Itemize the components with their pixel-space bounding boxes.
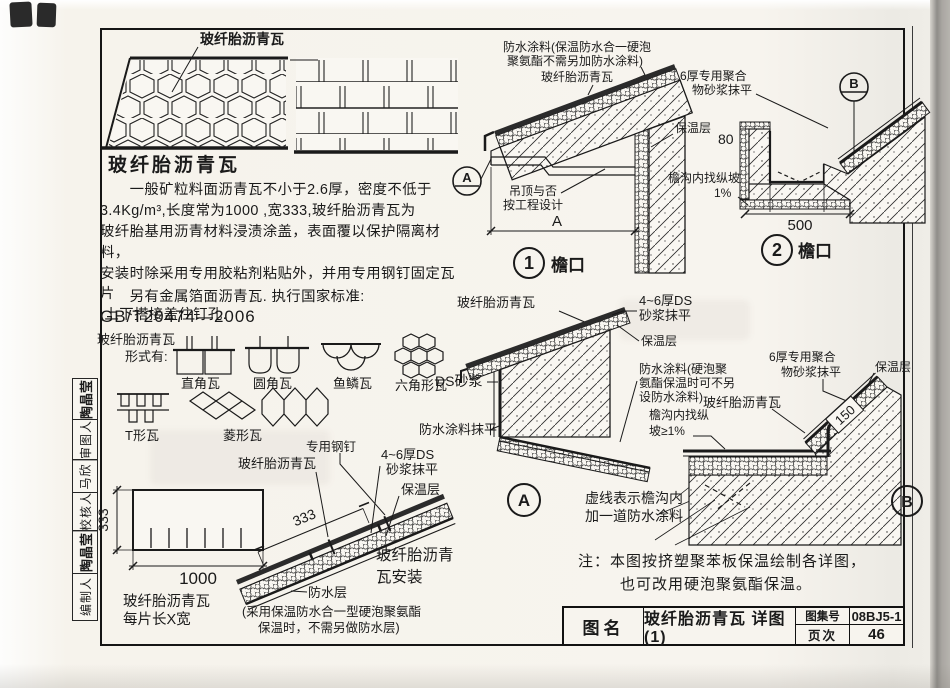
round-tile-icon (245, 336, 309, 373)
waterproof-label: 防水层 (308, 585, 347, 600)
coating-level-label: 防水涂料抹平 (419, 422, 497, 437)
fishscale-tile-icon (321, 344, 381, 370)
tile-type-label: 直角瓦 (181, 376, 220, 391)
piece-width-dim: 1000 (179, 569, 217, 588)
dim-80: 80 (718, 131, 734, 147)
caption-number: 2 (772, 240, 782, 260)
shingle-label: 玻纤胎沥青瓦 (541, 70, 613, 84)
install-caption-line2: 瓦安装 (376, 568, 423, 586)
page-number-label: 页次 (796, 625, 850, 644)
dim-letter: A (552, 213, 562, 230)
dim-500: 500 (741, 210, 854, 234)
ds-mortar-label: DS砂浆 (435, 373, 482, 389)
sidebar-checker-name: 马欣 (72, 459, 98, 493)
pointed-hex-tile-icon (262, 388, 328, 426)
standard-number: GB/T20474—2006 (100, 307, 256, 327)
atlas-number-label: 图集号 (796, 608, 850, 625)
diamond-tile-icon (190, 392, 255, 419)
sidebar-role-reviewer: 审图人 (72, 419, 98, 461)
caption-letter: A (518, 491, 530, 510)
waterproof-note-line1: (采用保温防水合一型硬泡聚氨酯 (242, 604, 421, 619)
detail-B-drawing: 6厚专用聚合 物砂浆抹平 保温层 玻纤胎沥青瓦 150 檐沟内找纵 坡≥1% B (645, 345, 925, 550)
tile-type-label: 圆角瓦 (253, 376, 292, 391)
mortar-label-line1: 6厚专用聚合 (680, 68, 747, 83)
section-heading: 玻纤胎沥青瓦 (108, 150, 240, 177)
coating-label-line1: 防水涂料(保温防水合一硬泡 (503, 39, 651, 54)
piece-caption-line2: 每片长X宽 (123, 611, 191, 628)
general-note-line2: 也可改用硬泡聚氨酯保温。 (620, 573, 812, 594)
tile-type-label: 鱼鳞瓦 (333, 376, 372, 391)
install-dim: 333 (290, 505, 318, 529)
forms-label-line1: 玻纤胎沥青瓦 (97, 332, 175, 347)
mortar-label-line1: 6厚专用聚合 (769, 349, 836, 364)
general-note-line1: 注：本图按挤塑聚苯板保温绘制各详图， (578, 550, 866, 571)
ceiling-note-line2: 按工程设计 (503, 197, 563, 212)
caption-letter: B (901, 494, 913, 511)
slope-label-line2: 坡≥1% (649, 424, 685, 438)
detailA-lower-band (497, 437, 650, 482)
page-bottom-shadow (0, 664, 950, 688)
install-caption-line1: 玻纤胎沥青 (376, 546, 454, 564)
sidebar-stamp-name: 陶晶莹 (72, 530, 98, 574)
insulation-label: 保温层 (875, 360, 911, 374)
shingle-label: 玻纤胎沥青瓦 (703, 395, 781, 410)
rect-shingle-drawing (294, 58, 458, 152)
drawing-title: 玻纤胎沥青瓦 详图(1) (644, 608, 796, 644)
sidebar-role-compiler: 编制人 (72, 573, 98, 621)
tile-type-label: T形瓦 (125, 428, 159, 443)
t-tile-icon (117, 394, 169, 422)
ceiling-note-line1: 吊顶与否 (509, 184, 557, 198)
dim-value: 500 (787, 217, 812, 234)
scan-artifact-mark (9, 1, 32, 27)
mortar-label-line2: 物砂浆抹平 (692, 82, 752, 97)
page-number-value: 46 (850, 625, 903, 644)
slope-label-line2: 1% (714, 186, 732, 200)
shingle-pointer-label: 玻纤胎沥青瓦 (200, 31, 284, 47)
title-block: 图名 玻纤胎沥青瓦 详图(1) 图集号 08BJ5-1 页次 46 (562, 606, 905, 646)
gutter-channel (740, 122, 850, 212)
detail-caption-A: A (508, 484, 540, 516)
scan-artifact-mark (37, 3, 57, 28)
slope-label-line1: 檐沟内找纵 (649, 408, 709, 422)
caption-number: 1 (524, 253, 534, 273)
mortar-label-line1: 4~6厚DS (639, 293, 692, 308)
slope-label-line1: 檐沟内找纵坡 (668, 171, 740, 185)
intro-paragraph-2: 另有金属箔面沥青瓦. 执行国家标准: (100, 287, 462, 308)
piece-caption-line1: 玻纤胎沥青瓦 (123, 593, 210, 610)
square-tile-icon (173, 336, 235, 374)
hex-shingle-drawing (102, 58, 288, 148)
waterproof-note-line2: 保温时，不需另做防水层) (258, 620, 400, 635)
forms-label-line2: 形式有: (125, 349, 168, 364)
shingle-label: 玻纤胎沥青瓦 (457, 295, 535, 310)
caption-text: 檐口 (798, 241, 832, 261)
section-marker-letter: B (849, 76, 858, 91)
section-marker-A: A (453, 159, 491, 195)
detail-caption-1: 1 檐口 (514, 248, 585, 278)
coating-label-line2: 聚氨酯不需另加防水涂料) (507, 53, 643, 68)
caption-text: 檐口 (551, 255, 585, 275)
sidebar-role-checker: 校核人 (72, 492, 98, 532)
shingle-label: 玻纤胎沥青瓦 (238, 456, 316, 471)
title-block-name-label: 图名 (564, 608, 644, 644)
section-marker-letter: A (462, 170, 472, 185)
detail-2-gutter-drawing: 6厚专用聚合 物砂浆抹平 B 80 檐沟内找纵坡 1% 500 2 檐口 (660, 58, 925, 283)
nail-label: 专用钢钉 (306, 439, 357, 454)
book-edge-shadow (930, 0, 950, 688)
mortar-label-line2: 砂浆抹平 (639, 308, 691, 323)
detail-caption-2: 2 檐口 (762, 235, 832, 265)
sidebar-stamp-name: 陶晶莹 (72, 378, 98, 420)
mortar-label-line2: 物砂浆抹平 (781, 364, 841, 379)
atlas-number-value: 08BJ5-1 (850, 608, 903, 625)
